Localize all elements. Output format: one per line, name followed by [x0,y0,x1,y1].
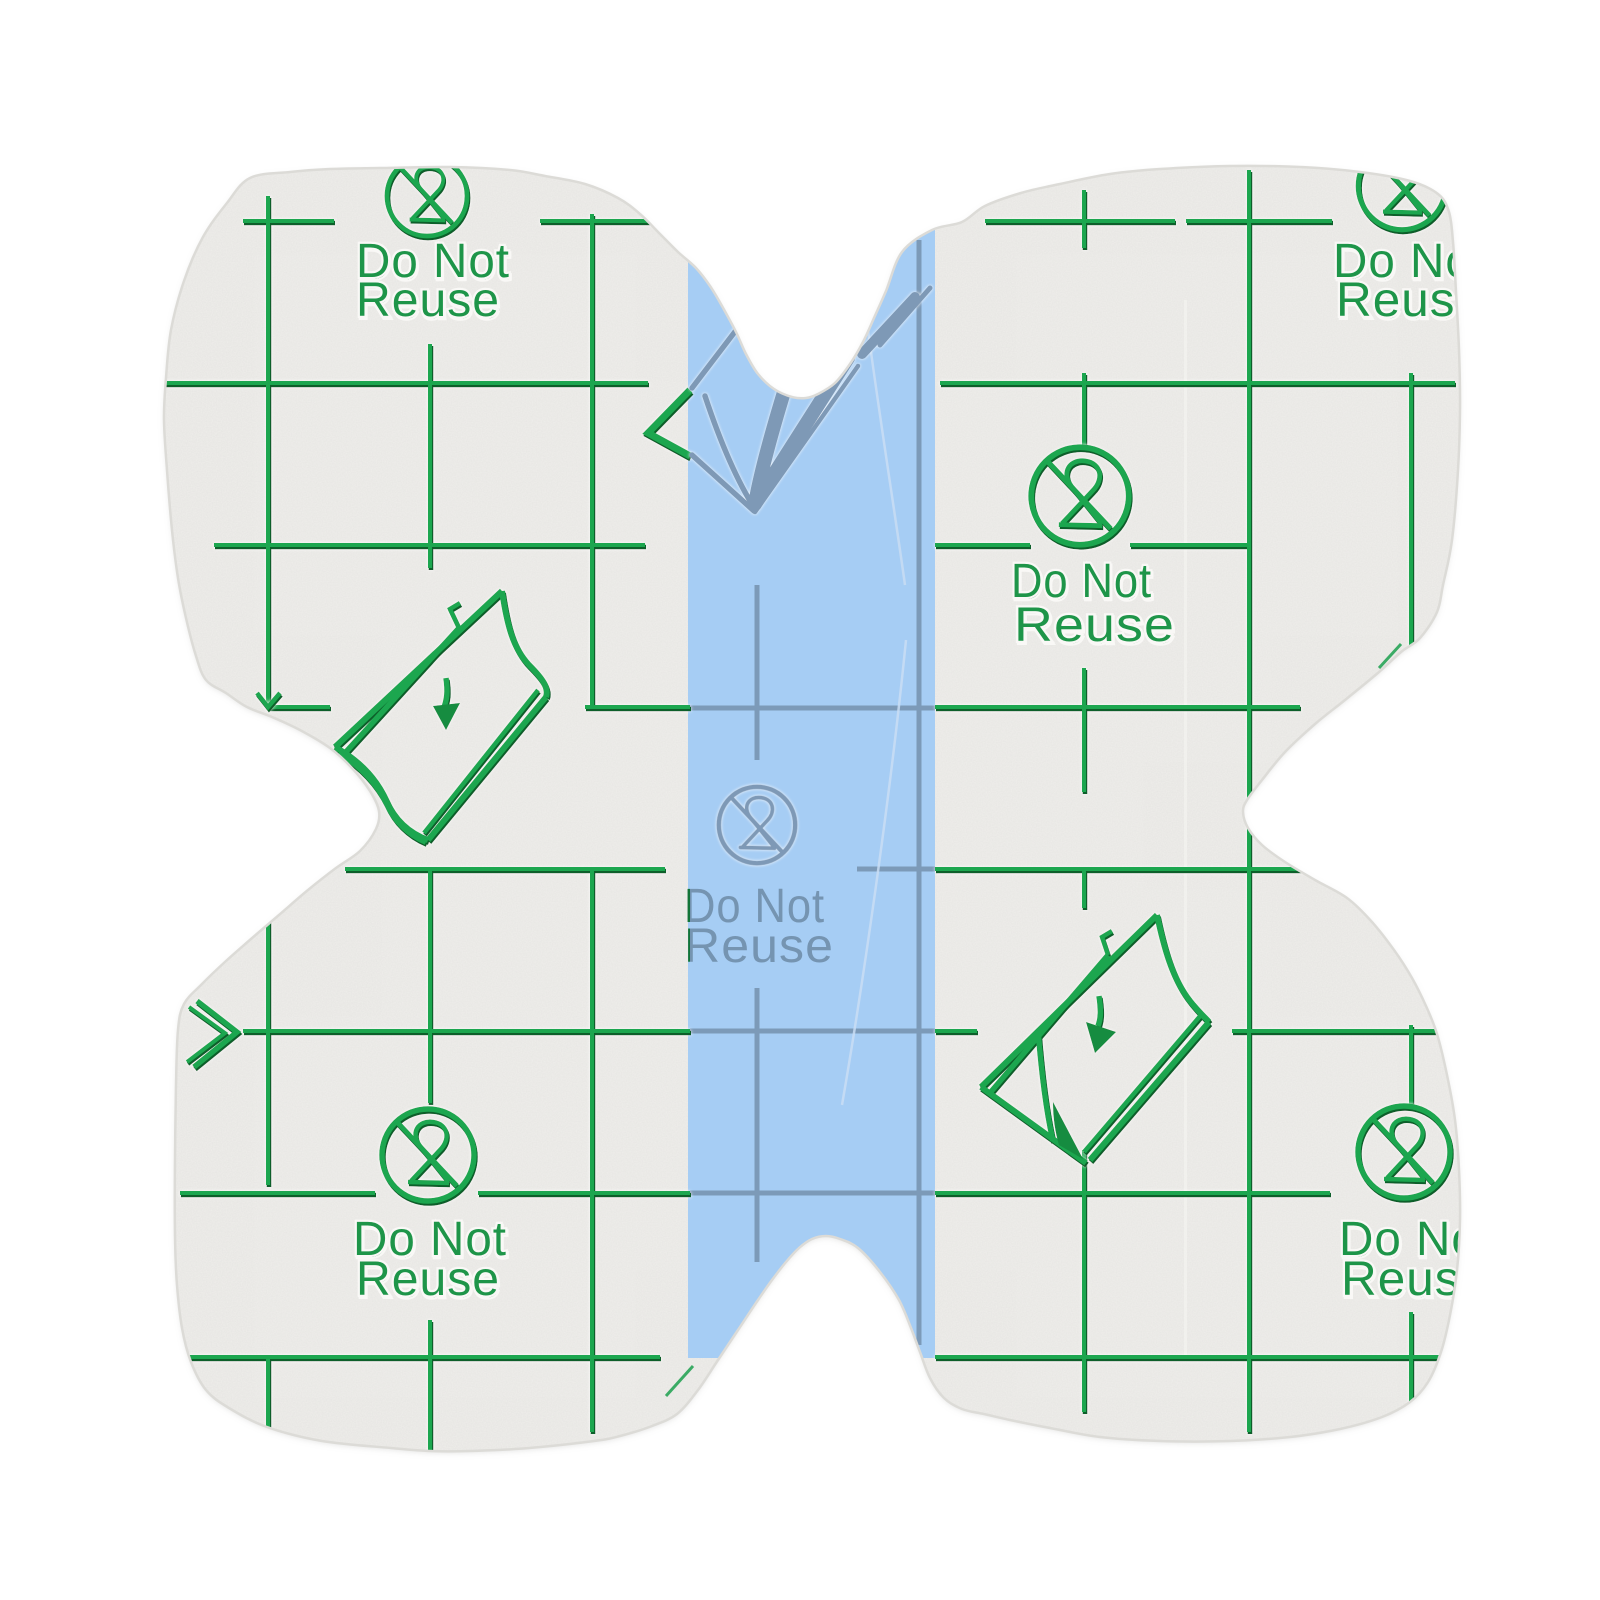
svg-text:Reuse: Reuse [684,920,834,973]
